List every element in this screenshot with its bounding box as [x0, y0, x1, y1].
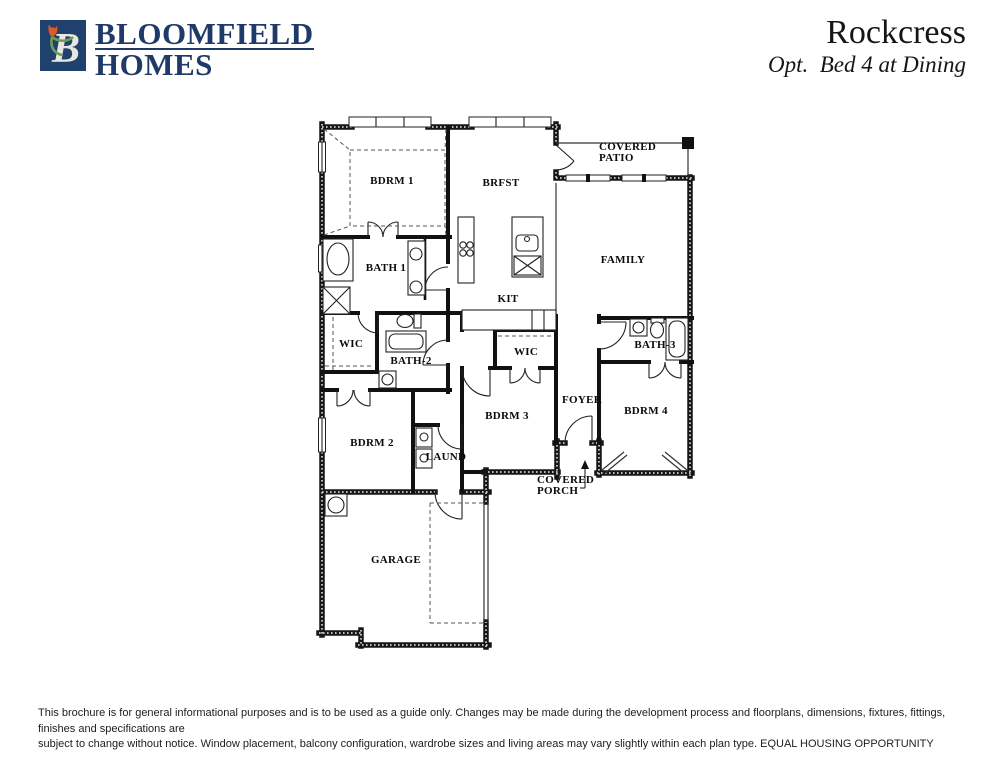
room-label-wic-left: WIC [339, 338, 363, 350]
room-label-bdrm2: BDRM 2 [350, 437, 394, 449]
disclaimer-line1: This brochure is for general information… [38, 706, 958, 737]
room-label-bdrm1: BDRM 1 [370, 175, 414, 187]
entry-arrow-icon [581, 460, 589, 469]
disclaimer-line2: subject to change without notice. Window… [38, 737, 958, 753]
disclaimer: This brochure is for general information… [38, 706, 958, 753]
patio-and-open-lines [484, 137, 694, 622]
room-label-bdrm4: BDRM 4 [624, 405, 668, 417]
room-label-covered-patio: COVERED PATIO [599, 142, 656, 164]
brochure-page: B BLOOMFIELD HOMES Rockcress Opt. Bed 4 … [0, 0, 994, 768]
room-label-covered-porch: COVERED PORCH [537, 475, 594, 497]
washer [416, 428, 432, 447]
floorplan-drawing [0, 0, 994, 768]
room-label-garage: GARAGE [371, 554, 421, 566]
garage-bay-outline [430, 503, 484, 623]
walls-exterior [319, 124, 692, 647]
toilet [414, 314, 421, 328]
patio-post [682, 137, 694, 149]
bdrm1-tray-ceiling [350, 150, 445, 226]
room-label-family: FAMILY [601, 254, 646, 266]
dashed-guides [324, 129, 553, 623]
room-label-bdrm3: BDRM 3 [485, 410, 529, 422]
room-label-kit: KIT [497, 293, 518, 305]
room-label-brfst: BRFST [483, 177, 520, 189]
room-label-foyer: FOYER [562, 394, 602, 406]
room-label-laund: LAUND [426, 451, 467, 463]
room-label-wic-mid: WIC [514, 346, 538, 358]
room-label-bath3: BATH-3 [634, 339, 675, 351]
kitchen-counter [462, 310, 556, 330]
room-label-bath2: BATH-2 [390, 355, 431, 367]
room-label-bath1: BATH 1 [366, 262, 406, 274]
